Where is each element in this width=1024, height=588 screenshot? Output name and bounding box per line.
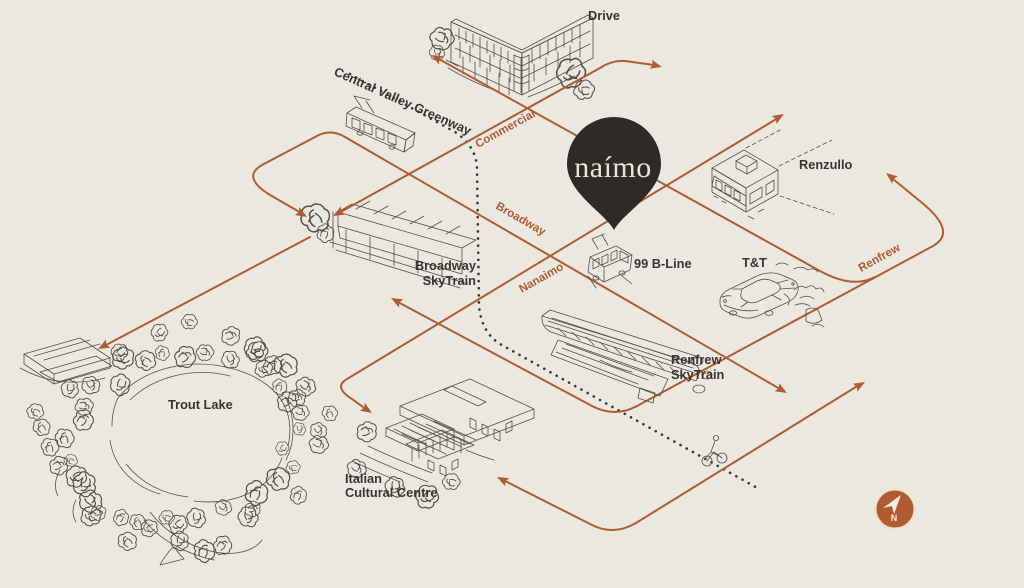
svg-text:99 B-Line: 99 B-Line	[634, 256, 692, 271]
svg-text:T&T: T&T	[742, 255, 767, 270]
svg-text:Italian: Italian	[345, 471, 382, 486]
svg-text:Broadway: Broadway	[415, 258, 477, 273]
svg-text:Renfrew: Renfrew	[671, 352, 722, 367]
svg-text:SkyTrain: SkyTrain	[671, 367, 725, 382]
svg-text:Renzullo: Renzullo	[799, 157, 853, 172]
svg-text:N: N	[891, 513, 898, 523]
svg-text:Cultural Centre: Cultural Centre	[345, 485, 437, 500]
svg-text:SkyTrain: SkyTrain	[423, 273, 477, 288]
svg-text:Trout Lake: Trout Lake	[168, 397, 233, 412]
svg-text:Drive: Drive	[588, 8, 620, 23]
svg-text:naímo: naímo	[574, 151, 652, 184]
